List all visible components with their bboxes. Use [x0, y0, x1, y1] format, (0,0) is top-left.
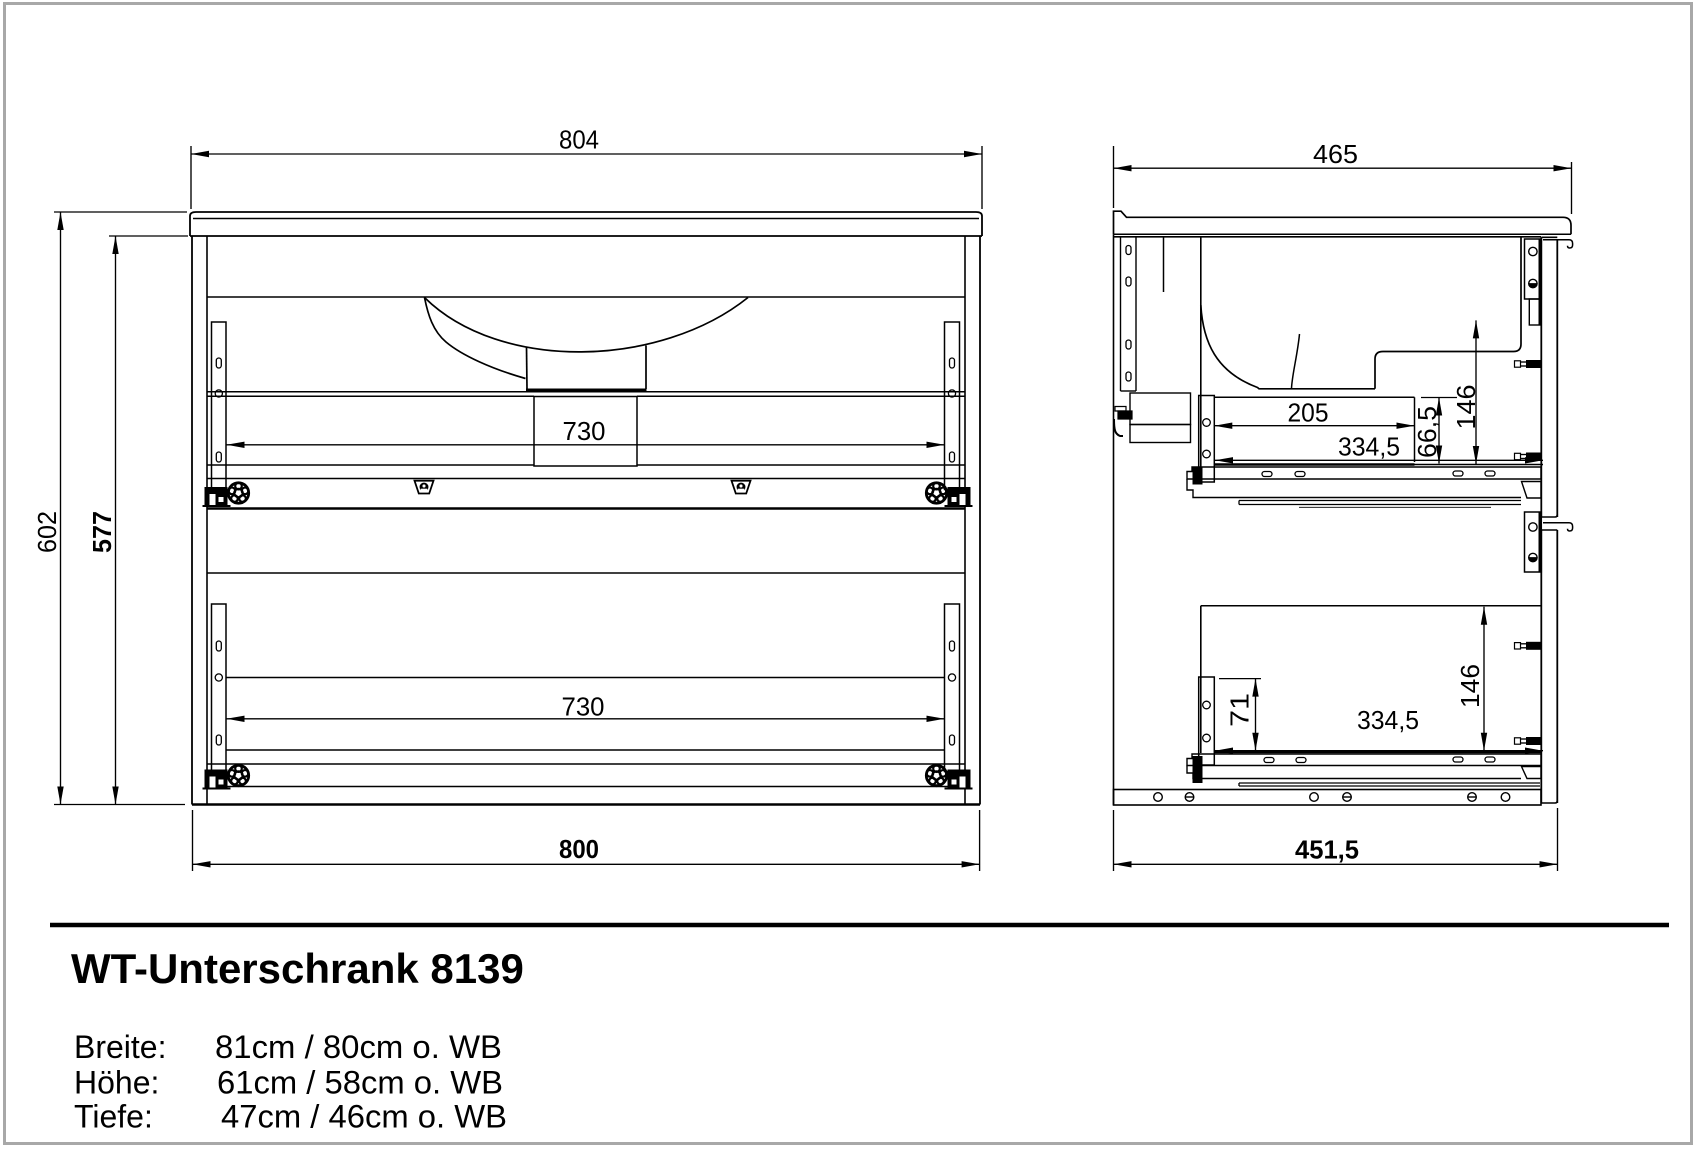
svg-text:71: 71	[1225, 693, 1255, 727]
svg-text:804: 804	[559, 125, 599, 155]
svg-text:334,5: 334,5	[1338, 432, 1400, 462]
svg-text:47cm / 46cm o. WB: 47cm / 46cm o. WB	[221, 1099, 507, 1135]
svg-text:81cm / 80cm o. WB: 81cm / 80cm o. WB	[215, 1029, 502, 1065]
svg-text:730: 730	[562, 692, 605, 722]
svg-text:Tiefe:: Tiefe:	[74, 1099, 153, 1135]
svg-text:Höhe:: Höhe:	[74, 1065, 159, 1101]
svg-text:WT-Unterschrank 8139: WT-Unterschrank 8139	[71, 945, 524, 992]
svg-text:66,5: 66,5	[1412, 406, 1442, 458]
svg-text:730: 730	[563, 416, 606, 446]
svg-text:146: 146	[1451, 385, 1481, 430]
svg-text:602: 602	[32, 511, 62, 553]
svg-text:451,5: 451,5	[1295, 835, 1359, 865]
svg-text:Breite:: Breite:	[74, 1029, 166, 1065]
svg-text:334,5: 334,5	[1357, 705, 1419, 735]
svg-text:146: 146	[1455, 664, 1485, 708]
svg-text:61cm / 58cm o. WB: 61cm / 58cm o. WB	[217, 1065, 503, 1101]
svg-text:577: 577	[87, 511, 117, 553]
svg-text:205: 205	[1288, 398, 1329, 428]
svg-text:465: 465	[1313, 139, 1358, 169]
svg-text:800: 800	[559, 834, 599, 864]
